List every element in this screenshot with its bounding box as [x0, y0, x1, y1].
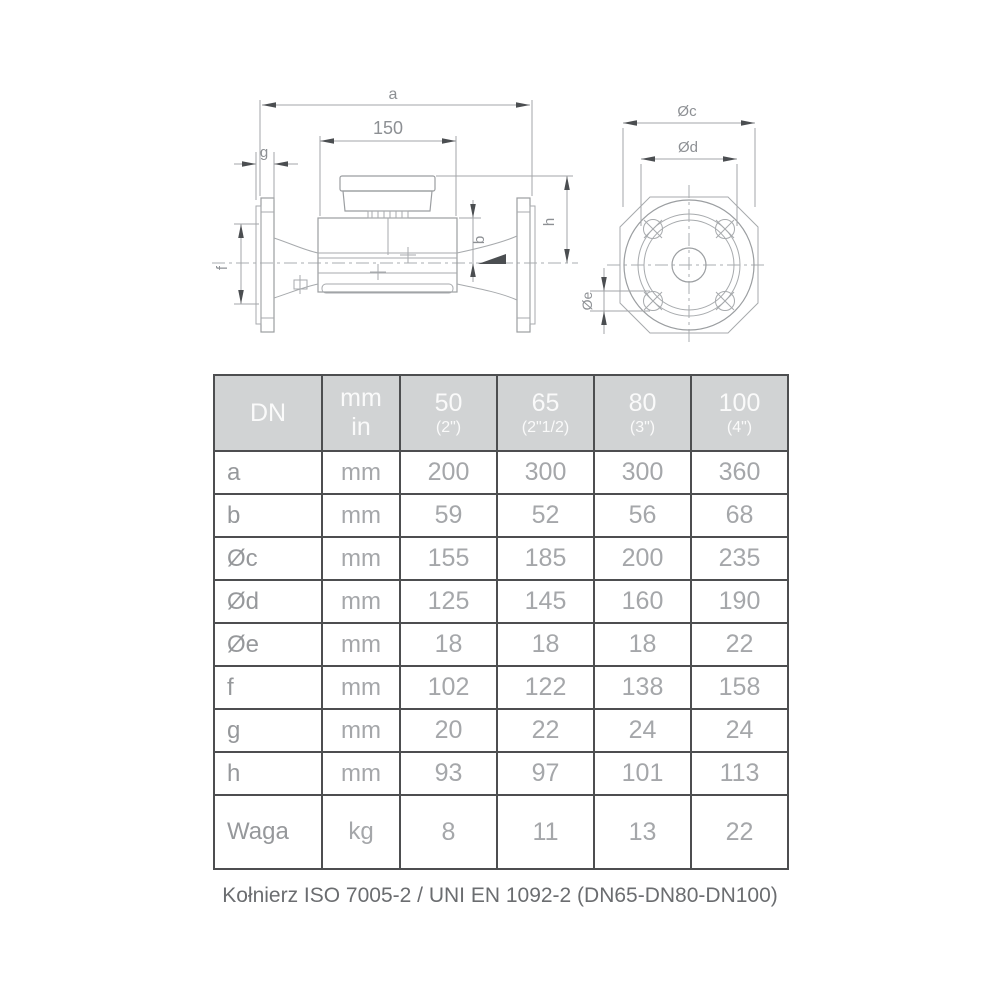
table-row-g: g mm 20 22 24 24 — [214, 709, 788, 752]
dim-label-f: f — [214, 265, 231, 270]
table-row-od: Ød mm 125 145 160 190 — [214, 580, 788, 623]
dimension-table: DN mm in 50 (2") 65 (2"1/2) 80 (3") 100 … — [213, 374, 789, 870]
register-head — [340, 176, 435, 255]
dim-label-oc: Øc — [677, 103, 697, 120]
right-flange — [517, 198, 535, 332]
drain-plug — [294, 275, 307, 294]
table-row-waga: Waga kg 8 11 13 22 — [214, 795, 788, 869]
header-dn80: 80 (3") — [594, 375, 691, 451]
header-dn: DN — [214, 375, 322, 451]
dim-label-g: g — [260, 144, 268, 161]
dim-label-a: a — [389, 86, 398, 103]
flow-arrow — [478, 254, 506, 264]
dim-label-150: 150 — [373, 118, 403, 138]
datasheet-page: a 150 g — [0, 0, 1000, 1000]
dimension-g: g — [234, 144, 298, 200]
dimension-f: f — [214, 224, 259, 304]
dim-label-b: b — [471, 236, 488, 244]
table-row-b: b mm 59 52 56 68 — [214, 494, 788, 537]
dim-label-od: Ød — [678, 139, 698, 156]
outlet-cone — [457, 236, 517, 300]
header-dn65: 65 (2"1/2) — [497, 375, 594, 451]
header-dn100: 100 (4") — [691, 375, 788, 451]
technical-drawing: a 150 g — [0, 0, 1000, 372]
dim-label-h: h — [541, 218, 558, 226]
table-row-a: a mm 200 300 300 360 — [214, 451, 788, 494]
table-row-h: h mm 93 97 101 113 — [214, 752, 788, 795]
table-row-f: f mm 102 122 138 158 — [214, 666, 788, 709]
side-view-drawing: a 150 g — [212, 86, 578, 332]
front-view-drawing: Øc Ød Øe — [579, 103, 768, 345]
header-unit: mm in — [322, 375, 400, 451]
table-header-row: DN mm in 50 (2") 65 (2"1/2) 80 (3") 100 … — [214, 375, 788, 451]
left-flange — [256, 198, 274, 332]
table-row-oc: Øc mm 155 185 200 235 — [214, 537, 788, 580]
dimension-150: 150 — [320, 118, 456, 216]
standard-note: Kołnierz ISO 7005-2 / UNI EN 1092-2 (DN6… — [0, 884, 1000, 908]
dim-label-oe: Øe — [579, 291, 595, 310]
dimension-b: b — [459, 200, 488, 282]
table-row-oe: Øe mm 18 18 18 22 — [214, 623, 788, 666]
header-dn50: 50 (2") — [400, 375, 497, 451]
